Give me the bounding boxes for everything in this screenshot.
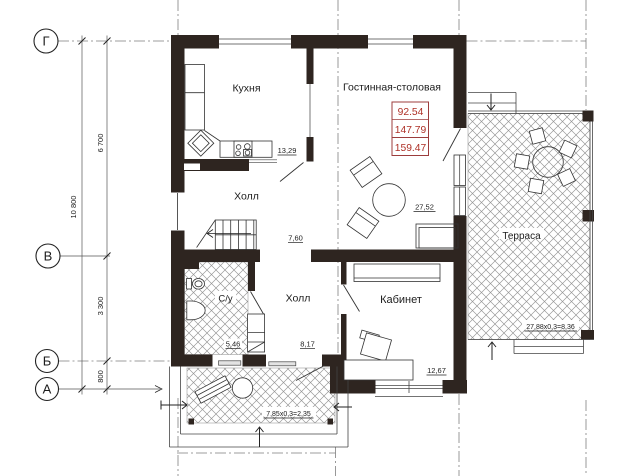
svg-text:7,85х0,3=2,35: 7,85х0,3=2,35: [266, 411, 311, 418]
svg-text:Б: Б: [43, 354, 52, 369]
svg-text:92.54: 92.54: [398, 107, 424, 118]
svg-text:27,88х0,3=8,36: 27,88х0,3=8,36: [526, 324, 575, 331]
svg-text:3 300: 3 300: [96, 297, 105, 316]
svg-text:Кабинет: Кабинет: [380, 294, 422, 306]
svg-text:Холл: Холл: [286, 293, 311, 305]
svg-text:С/у: С/у: [218, 294, 233, 305]
svg-text:7,60: 7,60: [288, 234, 303, 243]
svg-text:800: 800: [96, 370, 105, 383]
svg-text:8,17: 8,17: [300, 340, 315, 349]
svg-text:27,52: 27,52: [415, 203, 434, 212]
svg-text:159.47: 159.47: [395, 143, 427, 154]
svg-text:5,46: 5,46: [226, 340, 241, 349]
svg-text:13,29: 13,29: [278, 146, 297, 155]
svg-text:Гостинная-столовая: Гостинная-столовая: [343, 82, 441, 94]
svg-text:А: А: [43, 382, 52, 397]
svg-text:10 800: 10 800: [69, 196, 78, 219]
svg-text:Г: Г: [42, 34, 49, 49]
svg-text:Терраса: Терраса: [502, 231, 541, 242]
svg-text:147.79: 147.79: [395, 125, 427, 136]
svg-text:Кухня: Кухня: [232, 83, 260, 95]
svg-text:В: В: [44, 249, 53, 264]
svg-text:12,67: 12,67: [427, 366, 446, 375]
svg-text:6 700: 6 700: [96, 134, 105, 153]
svg-text:Холл: Холл: [234, 191, 259, 203]
